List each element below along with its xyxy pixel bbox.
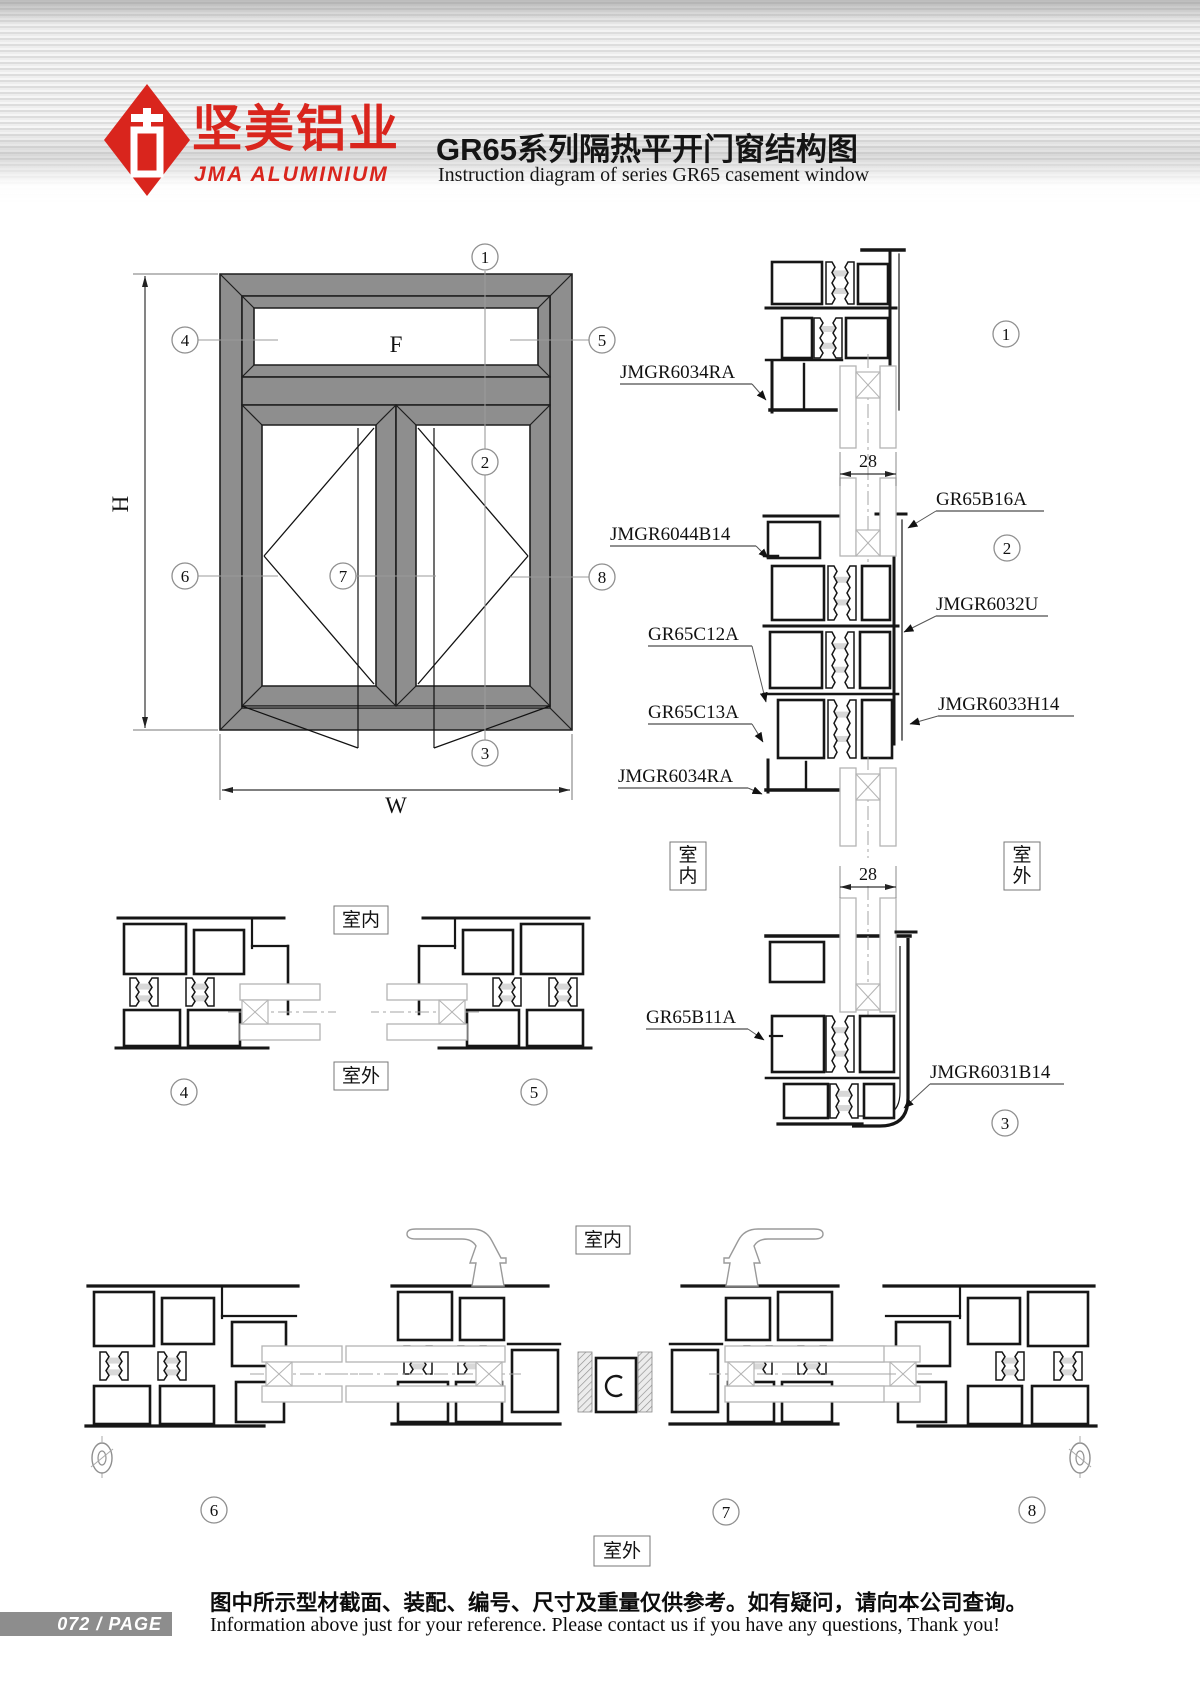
svg-text:2: 2 — [481, 453, 490, 472]
footer-note-cn: 图中所示型材截面、装配、编号、尺寸及重量仅供参考。如有疑问，请向本公司查询。 — [210, 1586, 1027, 1617]
part-label: JMGR6034RA — [618, 766, 762, 794]
svg-text:1: 1 — [481, 248, 490, 267]
part-label: JMGR6031B14 — [904, 1062, 1064, 1108]
svg-text:GR65B16A: GR65B16A — [936, 489, 1027, 510]
part-label: JMGR6033H14 — [910, 694, 1074, 724]
room-label-outdoor: 室外 — [334, 1062, 388, 1090]
height-dim-label: H — [108, 496, 133, 513]
svg-text:JMGR6033H14: JMGR6033H14 — [938, 694, 1060, 715]
svg-text:8: 8 — [598, 568, 607, 587]
room-label-indoor: 室内 — [334, 906, 388, 934]
section-detail-7-center — [578, 1352, 652, 1412]
width-dim-label: W — [385, 793, 407, 818]
svg-text:3: 3 — [481, 744, 490, 763]
page-number-badge: 072 / PAGE — [0, 1612, 172, 1636]
svg-text:6: 6 — [181, 567, 190, 586]
room-label-outdoor: 室外 — [1004, 842, 1040, 890]
svg-text:5: 5 — [598, 331, 607, 350]
svg-text:7: 7 — [722, 1503, 731, 1522]
part-label: GR65C13A — [648, 702, 763, 742]
structure-drawing: F H W 28 28 JMGR6034RA JMGR6044B14 GR65C… — [0, 0, 1200, 1697]
part-label: JMGR6032U — [904, 594, 1048, 632]
section-detail-2 — [764, 466, 906, 858]
svg-text:室内: 室内 — [678, 844, 697, 887]
footer-note-en: Information above just for your referenc… — [210, 1614, 1000, 1637]
section-detail-7-right — [670, 1229, 896, 1424]
svg-text:JMGR6044B14: JMGR6044B14 — [610, 524, 731, 545]
svg-text:GR65B11A: GR65B11A — [646, 1007, 736, 1028]
svg-text:3: 3 — [1001, 1114, 1010, 1133]
svg-text:GR65C12A: GR65C12A — [648, 624, 739, 645]
room-label-indoor: 室内 — [576, 1226, 630, 1254]
glass-width-dim: 28 — [859, 451, 877, 471]
part-label: GR65C12A — [648, 624, 766, 702]
svg-text:5: 5 — [530, 1083, 539, 1102]
window-elevation-diagram — [133, 271, 589, 800]
svg-text:7: 7 — [339, 567, 348, 586]
part-label: JMGR6044B14 — [610, 524, 768, 558]
svg-text:JMGR6032U: JMGR6032U — [936, 594, 1039, 615]
section-detail-5 — [371, 918, 591, 1048]
section-detail-6 — [86, 1286, 358, 1480]
svg-text:4: 4 — [181, 331, 190, 350]
section-detail-7-left — [334, 1229, 560, 1424]
section-detail-4 — [116, 918, 336, 1048]
svg-text:室外: 室外 — [1012, 844, 1031, 887]
section-detail-3 — [766, 886, 916, 1126]
fixed-pane-label: F — [390, 332, 403, 357]
section-detail-1 — [766, 250, 904, 460]
svg-text:6: 6 — [210, 1501, 219, 1520]
part-label: GR65B11A — [646, 1007, 764, 1040]
part-label: GR65B16A — [908, 489, 1044, 528]
page-number: 072 / PAGE — [57, 1612, 162, 1636]
svg-text:室外: 室外 — [342, 1065, 380, 1087]
svg-text:8: 8 — [1028, 1501, 1037, 1520]
svg-text:JMGR6034RA: JMGR6034RA — [618, 766, 733, 787]
room-label-outdoor: 室外 — [594, 1536, 650, 1566]
section-detail-8 — [824, 1286, 1096, 1480]
svg-text:2: 2 — [1003, 539, 1012, 558]
svg-text:室内: 室内 — [584, 1229, 622, 1251]
room-label-indoor: 室内 — [670, 842, 706, 890]
svg-text:室内: 室内 — [342, 909, 380, 931]
svg-text:4: 4 — [180, 1083, 189, 1102]
svg-text:JMGR6031B14: JMGR6031B14 — [930, 1062, 1051, 1083]
glass-width-dim: 28 — [859, 864, 877, 884]
part-label: JMGR6034RA — [620, 362, 766, 400]
svg-text:GR65C13A: GR65C13A — [648, 702, 739, 723]
svg-text:JMGR6034RA: JMGR6034RA — [620, 362, 735, 383]
svg-text:室外: 室外 — [603, 1540, 641, 1562]
svg-text:1: 1 — [1002, 325, 1011, 344]
